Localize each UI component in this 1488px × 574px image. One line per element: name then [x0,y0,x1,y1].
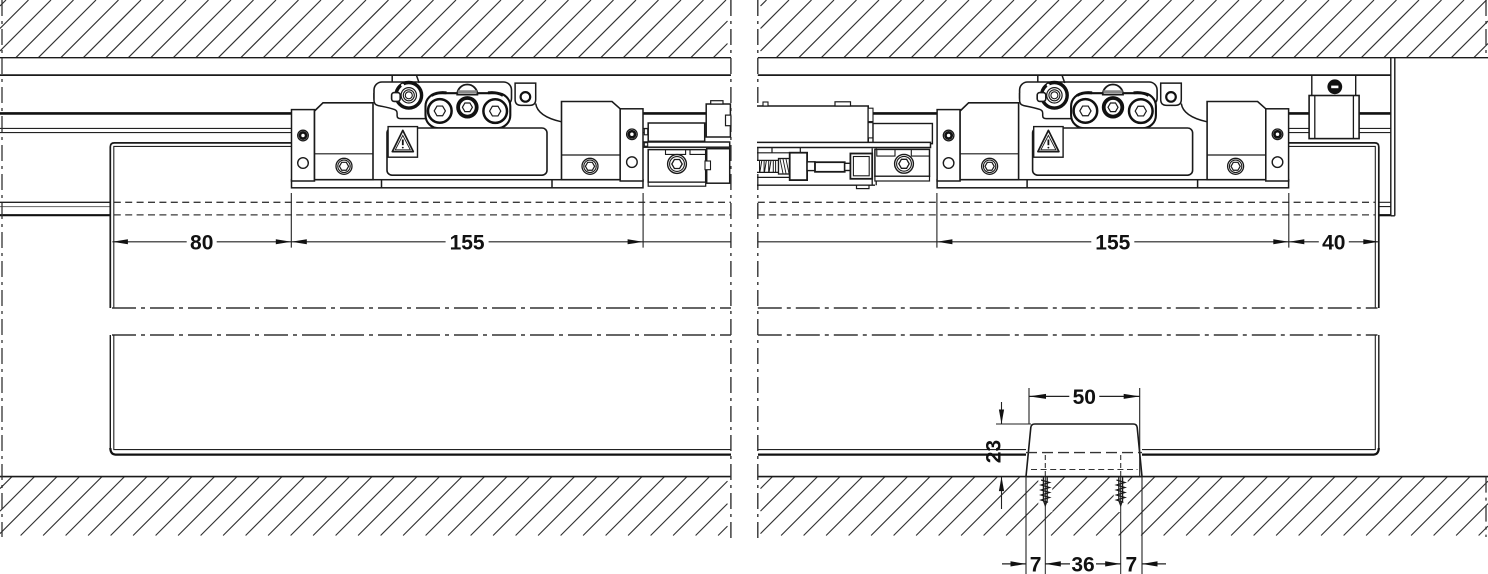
svg-text:7: 7 [1030,554,1042,574]
svg-text:155: 155 [1095,231,1130,254]
svg-text:36: 36 [1071,554,1094,574]
svg-text:23: 23 [983,440,1006,463]
svg-text:7: 7 [1126,554,1138,574]
svg-text:40: 40 [1322,231,1345,254]
svg-text:80: 80 [190,231,213,254]
svg-text:155: 155 [450,231,485,254]
svg-text:50: 50 [1073,386,1096,409]
